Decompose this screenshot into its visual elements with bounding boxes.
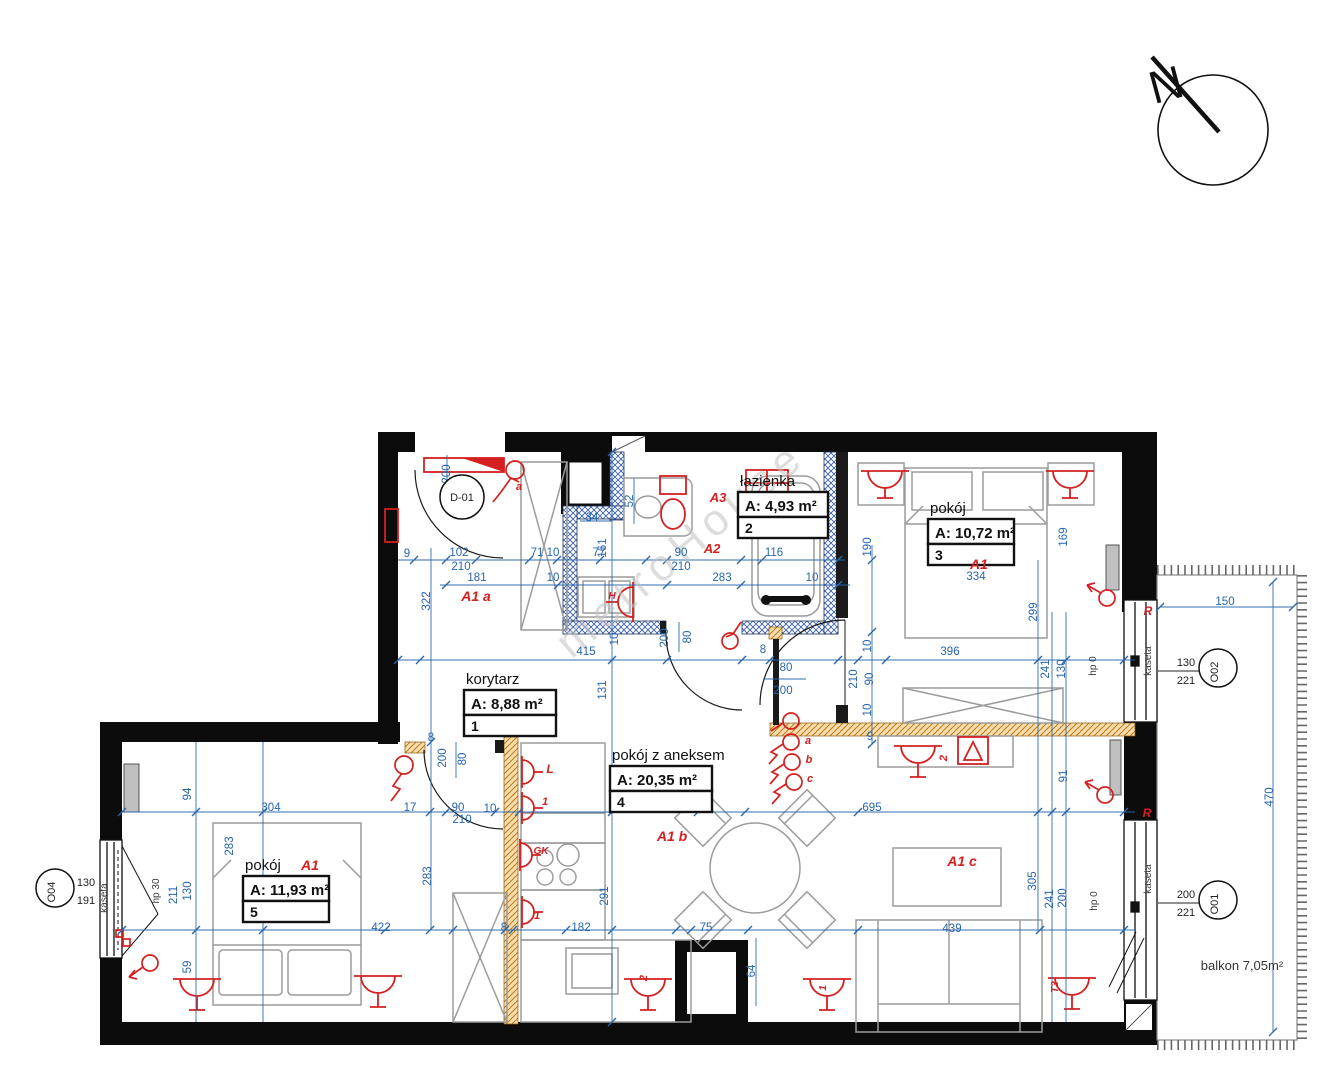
marker-id: O01	[1209, 894, 1221, 915]
red-annotation-label: 1	[542, 796, 548, 808]
dim-label: 8	[760, 644, 766, 656]
red-annotation-label: A1 b	[656, 828, 688, 844]
dim-label: 150	[1215, 596, 1234, 608]
dim-label: 90	[675, 547, 688, 559]
dim-label: 283	[224, 836, 236, 855]
dim-label: 71 10	[531, 547, 560, 559]
dim-label: 181	[467, 572, 486, 584]
red-annotation-label: b	[806, 754, 813, 766]
dim-label: 90	[452, 802, 465, 814]
marker-id: D-01	[450, 492, 474, 504]
dim-label: 9	[867, 731, 873, 743]
room-number-box	[610, 791, 712, 812]
red-annotation-label: a	[805, 735, 811, 747]
dim-label: 200	[437, 748, 449, 767]
dim-label: 211	[168, 886, 180, 904]
dim-label: 695	[862, 802, 881, 814]
dim-label: 9	[404, 548, 410, 560]
dim-label: 131	[597, 680, 609, 699]
room-number: 5	[250, 904, 258, 920]
balcony	[1157, 570, 1302, 1045]
bathroom-door-swing	[666, 634, 742, 710]
room-label-1: korytarzA: 8,88 m²1	[464, 671, 556, 736]
dim-label: 299	[1028, 602, 1040, 621]
room-number: 4	[617, 794, 625, 810]
room-name: pokój z aneksem	[612, 747, 725, 764]
red-annotation-label: L	[546, 762, 553, 776]
dim-label: 200	[1057, 888, 1069, 907]
dim-label: 291	[599, 886, 611, 905]
window-annotation: hp 0	[1089, 891, 1100, 911]
dim-label: 80	[682, 631, 694, 644]
dim-label: 52	[624, 495, 636, 508]
dim-label: 75	[700, 922, 713, 934]
window-dim-width: 200	[1177, 889, 1195, 901]
room-number: 1	[471, 718, 479, 734]
red-annotation-label: A1 c	[946, 853, 977, 869]
window-O01-balcony-door	[1109, 820, 1157, 1000]
north-label: N	[1143, 55, 1189, 114]
dim-label: 130	[182, 881, 194, 900]
tv-symbol	[958, 737, 988, 764]
dim-label: 200	[773, 685, 792, 697]
marker-D-01: D-01	[440, 475, 484, 519]
room-area: A: 20,35 m²	[617, 772, 697, 789]
dim-label: 241	[1044, 889, 1056, 908]
red-annotation-label: A1	[300, 857, 319, 873]
dim-label: 439	[942, 923, 961, 935]
hall-wardrobe	[521, 462, 567, 630]
dim-label: 210	[848, 669, 860, 688]
red-annotation-label: c	[807, 773, 813, 785]
dim-label: 34	[586, 512, 599, 524]
dim-label: 91	[1058, 770, 1070, 783]
window-annotation: kaseta	[1143, 646, 1154, 676]
dim-label: 10	[862, 704, 874, 717]
dim-label: 10	[862, 640, 874, 653]
red-annotation-label: 2	[638, 975, 650, 982]
window-dim-height: 221	[1177, 907, 1195, 919]
dim-label: 17	[404, 802, 417, 814]
dim-label: 304	[261, 802, 281, 814]
window-dim-height: 191	[77, 895, 95, 907]
dim-label: 116	[765, 547, 783, 559]
red-annotation-label: 1	[534, 910, 540, 922]
dim-label: 8	[428, 732, 434, 744]
dim-label: 161	[597, 538, 609, 557]
dim-label: 396	[940, 646, 959, 658]
room-number: 3	[935, 547, 943, 563]
dim-label: 470	[1264, 787, 1276, 806]
dim-label: 64	[746, 964, 758, 977]
sofa	[856, 920, 1042, 1032]
tv-console	[878, 736, 1013, 767]
dim-label: 305	[1027, 871, 1039, 890]
floor-plan-page: metroHouse 200910221071 1077902101161811…	[0, 0, 1335, 1080]
dim-label: 90	[864, 673, 876, 686]
dim-label: 210	[452, 814, 471, 826]
dim-label: 80	[780, 662, 793, 674]
dim-label: 10	[484, 803, 497, 815]
room-area: A: 11,93 m²	[250, 882, 329, 899]
dim-label: 169	[1058, 527, 1070, 546]
red-annotation-label: A1	[969, 556, 988, 572]
red-annotation-label: A3	[709, 490, 727, 505]
apartment-floor-plan: metroHouse 200910221071 1077902101161811…	[0, 0, 1335, 1080]
window-dim-width: 130	[77, 877, 95, 889]
dim-label: 422	[371, 922, 390, 934]
dim-label: 94	[182, 787, 194, 800]
dim-label: 10	[609, 633, 621, 646]
red-annotation-label: GK	[534, 846, 550, 857]
dim-label: 200	[659, 628, 671, 647]
room-name: pokój	[930, 500, 966, 517]
dim-label: 415	[576, 646, 595, 658]
red-annotation-label: A1 a	[460, 588, 491, 604]
marker-O04: 130191O04	[36, 869, 95, 907]
dim-label: 210	[671, 561, 690, 573]
room-number: 2	[745, 520, 753, 536]
window-annotation: hp 0	[1088, 656, 1099, 676]
red-annotation-label: A2	[703, 541, 721, 556]
red-annotation-label: R	[1144, 604, 1153, 618]
window-annotation: hp 30	[151, 878, 162, 903]
entrance-door-leaf	[424, 458, 504, 472]
dim-label: 102	[449, 547, 468, 559]
dim-label: 241	[1040, 659, 1052, 678]
wardrobe-room3	[903, 688, 1063, 723]
dim-label: 130	[1056, 659, 1068, 678]
red-annotation-label: H	[608, 591, 616, 602]
dim-label: 10	[547, 572, 560, 584]
room-area: A: 4,93 m²	[745, 498, 817, 515]
room-label-2: łazienkaA: 4,93 m²2	[738, 473, 828, 538]
room-label-4: pokój z aneksemA: 20,35 m²4	[610, 747, 725, 812]
room-area: A: 8,88 m²	[471, 696, 543, 713]
red-annotation-label: a	[516, 481, 522, 493]
dim-label: 10	[806, 572, 819, 584]
room-name: łazienka	[740, 473, 796, 490]
marker-id: O02	[1209, 662, 1221, 683]
window-annotation: kaseta	[99, 883, 110, 913]
red-annotation-label: T3	[1050, 981, 1061, 993]
marker-id: O04	[46, 882, 58, 903]
room-area: A: 10,72 m²	[935, 525, 1015, 542]
red-annotation-label: 2	[938, 755, 950, 762]
dim-label: 190	[862, 537, 874, 556]
room-label-layer: korytarzA: 8,88 m²1łazienkaA: 4,93 m²2po…	[243, 473, 1015, 922]
dim-label: 283	[712, 572, 731, 584]
room-name: pokój	[245, 857, 281, 874]
balcony-label: balkon 7,05m²	[1201, 958, 1284, 973]
window-annotation: kaseta	[1143, 864, 1154, 894]
red-annotation-label: 1	[818, 985, 829, 991]
window-dim-height: 221	[1177, 675, 1195, 687]
window-dim-width: 130	[1177, 657, 1195, 669]
dim-label: 80	[457, 753, 469, 766]
marker-layer: D-01130221O02200221O01130191O04	[36, 475, 1237, 919]
dim-label: 322	[421, 591, 433, 610]
wardrobe-room5	[453, 893, 507, 1022]
room-name: korytarz	[466, 671, 519, 688]
dim-label: 334	[966, 571, 986, 583]
red-annotation-label: R	[1143, 806, 1152, 820]
dim-label: 8	[501, 922, 507, 934]
dim-label: 182	[571, 922, 590, 934]
dim-label: 59	[182, 961, 194, 974]
dim-label: 283	[422, 866, 434, 885]
